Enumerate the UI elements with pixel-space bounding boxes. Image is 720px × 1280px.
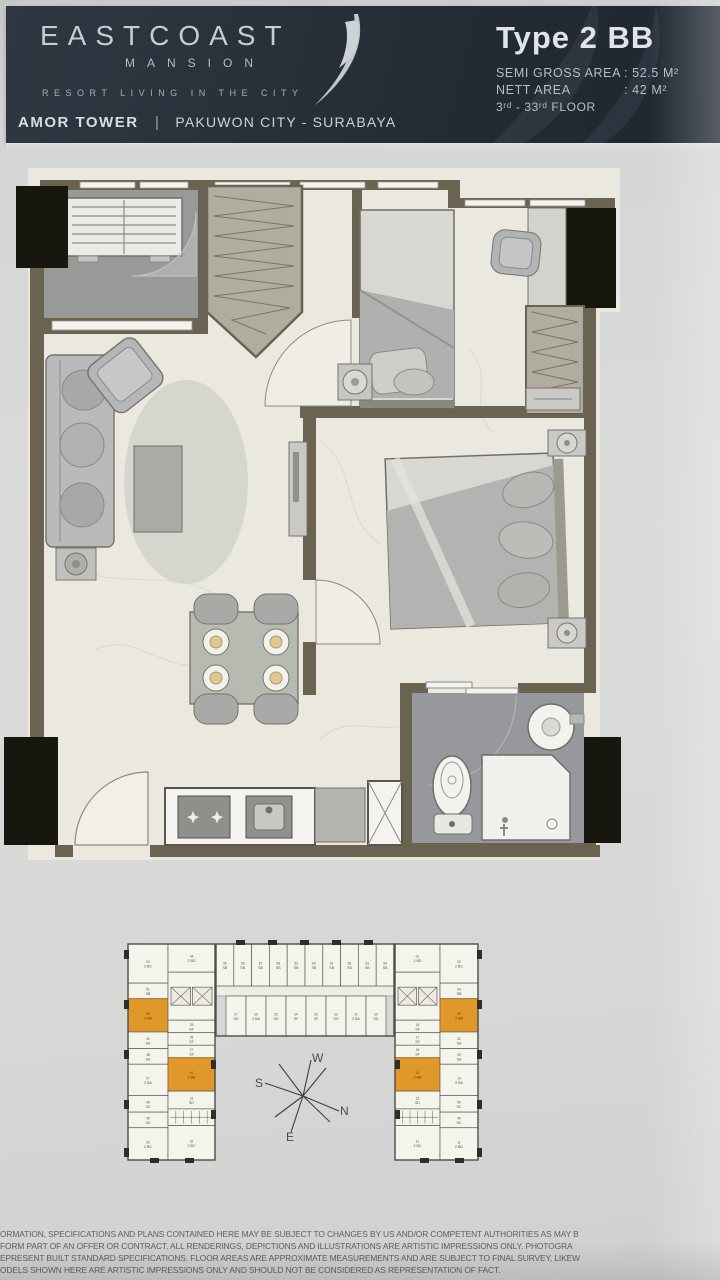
svg-text:16: 16 bbox=[416, 1048, 420, 1052]
svg-text:2 BA: 2 BA bbox=[144, 1081, 152, 1085]
floorplate-unit bbox=[395, 1109, 440, 1126]
floorplate-unit: 102 BB bbox=[395, 1058, 440, 1091]
svg-text:59: 59 bbox=[294, 962, 298, 966]
floorplate-keyplan: 032 BC51SB052 BB49SA48SA072 BA46SC45SC33… bbox=[124, 940, 482, 1163]
disclaimer-line: ORMATION, SPECIFICATIONS AND PLANS CONTA… bbox=[0, 1228, 716, 1240]
svg-text:SB: SB bbox=[312, 966, 317, 970]
svg-text:46: 46 bbox=[146, 1100, 150, 1104]
counter-extension bbox=[315, 788, 365, 842]
floorplate-unit: 102 BB bbox=[168, 1058, 215, 1091]
floorplate-unit: 60SB bbox=[305, 944, 323, 986]
svg-text:52: 52 bbox=[457, 1037, 461, 1041]
svg-text:SC: SC bbox=[457, 1121, 462, 1125]
svg-text:SB: SB bbox=[240, 966, 245, 970]
floorplate-unit: 072 BA bbox=[128, 1064, 168, 1095]
floorplate-unit: 112 BD bbox=[440, 1128, 478, 1160]
svg-text:2 BB: 2 BB bbox=[414, 1075, 422, 1079]
svg-text:SC: SC bbox=[146, 1105, 151, 1109]
floorplate-unit: 58SB bbox=[269, 944, 287, 986]
floorplate-unit: 23SF bbox=[306, 996, 326, 1036]
corridor bbox=[216, 986, 394, 996]
svg-text:2 BB: 2 BB bbox=[455, 1016, 463, 1020]
floorplate-unit: 18SF bbox=[395, 1020, 440, 1033]
svg-text:2 BC: 2 BC bbox=[455, 965, 463, 969]
floorplate-unit: 20SD bbox=[366, 996, 386, 1036]
floorplate-unit: 25SH bbox=[266, 996, 286, 1036]
svg-text:SD: SD bbox=[234, 1017, 239, 1021]
floorplate-unit: 22SH bbox=[326, 996, 346, 1036]
floorplate-unit: 51SB bbox=[128, 983, 168, 999]
svg-text:60: 60 bbox=[312, 962, 316, 966]
svg-text:SB: SB bbox=[457, 992, 462, 996]
svg-text:32: 32 bbox=[190, 1139, 194, 1143]
disclaimer-line: ODELS SHOWN HERE ARE ARTISTIC IMPRESSION… bbox=[0, 1264, 716, 1276]
svg-text:SC: SC bbox=[457, 1105, 462, 1109]
floorplate-unit: 55SB bbox=[216, 944, 234, 986]
floorplate-unit: 48SA bbox=[128, 1049, 168, 1065]
svg-text:SB: SB bbox=[329, 966, 334, 970]
floorplate-unit: 27SD bbox=[226, 996, 246, 1036]
floorplate-unit: 142 BA bbox=[440, 1064, 478, 1095]
floorplate-unit bbox=[168, 1109, 215, 1126]
svg-text:2 BC: 2 BC bbox=[414, 1144, 422, 1148]
service-shaft bbox=[368, 781, 402, 845]
floorplate-unit: 49SC bbox=[440, 1112, 478, 1128]
floorplate-unit: 052 BB bbox=[128, 999, 168, 1032]
svg-text:49: 49 bbox=[146, 1037, 150, 1041]
svg-text:50: 50 bbox=[457, 1100, 461, 1104]
svg-text:53: 53 bbox=[457, 1053, 461, 1057]
floorplate-unit: 322 BC bbox=[168, 1126, 215, 1160]
compass-south: S bbox=[255, 1076, 263, 1090]
floorplate-unit: 012 BD bbox=[395, 944, 440, 972]
svg-text:SB: SB bbox=[223, 966, 228, 970]
floorplate-unit: 46SC bbox=[128, 1095, 168, 1112]
floorplate-unit: 57SB bbox=[252, 944, 270, 986]
floorplate-unit: 52SA bbox=[440, 1032, 478, 1049]
svg-text:51: 51 bbox=[146, 987, 150, 991]
compass-rose: W S N E bbox=[255, 1051, 349, 1144]
svg-text:12: 12 bbox=[416, 1139, 420, 1143]
svg-text:48: 48 bbox=[146, 1053, 150, 1057]
floorplate-unit: 022 BC bbox=[440, 944, 478, 983]
svg-text:2 BA: 2 BA bbox=[352, 1017, 360, 1021]
column-top-left bbox=[16, 186, 68, 268]
floorplate-unit: 53SA bbox=[440, 1049, 478, 1065]
svg-text:25: 25 bbox=[274, 1013, 278, 1017]
floorplate-unit: 042 BD bbox=[168, 944, 215, 972]
floorplate-unit: 17SF bbox=[395, 1033, 440, 1046]
svg-text:SF: SF bbox=[189, 1040, 194, 1044]
svg-text:31: 31 bbox=[190, 1097, 194, 1101]
floorplate-unit: 28SF bbox=[168, 1033, 215, 1046]
svg-text:11: 11 bbox=[457, 1140, 461, 1144]
svg-text:15: 15 bbox=[416, 1097, 420, 1101]
toilet bbox=[433, 756, 472, 834]
floorplate-unit: 24SF bbox=[286, 996, 306, 1036]
floorplate-unit: 27SF bbox=[168, 1045, 215, 1058]
svg-text:SF: SF bbox=[415, 1040, 420, 1044]
svg-text:SB: SB bbox=[347, 966, 352, 970]
dining-set bbox=[190, 594, 298, 724]
svg-text:SF: SF bbox=[314, 1017, 319, 1021]
svg-text:SB: SB bbox=[365, 966, 370, 970]
svg-text:07: 07 bbox=[146, 1076, 150, 1080]
svg-text:SF: SF bbox=[415, 1027, 420, 1031]
floorplate-unit: 45SC bbox=[128, 1112, 168, 1128]
svg-text:SA: SA bbox=[457, 1057, 462, 1061]
svg-text:10: 10 bbox=[190, 1071, 194, 1075]
column-bottom-left bbox=[4, 737, 58, 845]
svg-text:SC: SC bbox=[146, 1121, 151, 1125]
svg-text:57: 57 bbox=[259, 962, 263, 966]
svg-text:45: 45 bbox=[146, 1116, 150, 1120]
svg-text:64: 64 bbox=[383, 962, 387, 966]
svg-text:2 BD: 2 BD bbox=[455, 1145, 463, 1149]
svg-text:49: 49 bbox=[457, 1116, 461, 1120]
floorplate-unit: 15SD bbox=[395, 1091, 440, 1109]
svg-text:23: 23 bbox=[314, 1013, 318, 1017]
svg-text:24: 24 bbox=[294, 1013, 298, 1017]
svg-text:2 BA: 2 BA bbox=[455, 1081, 463, 1085]
bedroom1-chair bbox=[490, 229, 542, 278]
floorplate-unit: 122 BC bbox=[395, 1126, 440, 1160]
svg-text:SH: SH bbox=[334, 1017, 339, 1021]
bathroom bbox=[412, 682, 584, 843]
floorplate-unit: 49SA bbox=[128, 1032, 168, 1049]
svg-text:SB: SB bbox=[294, 966, 299, 970]
floorplate-unit: 61SB bbox=[323, 944, 341, 986]
coffee-table bbox=[134, 446, 182, 532]
svg-text:SB: SB bbox=[258, 966, 263, 970]
svg-text:55: 55 bbox=[223, 962, 227, 966]
floorplate-unit: 29SF bbox=[168, 1020, 215, 1033]
svg-text:27: 27 bbox=[234, 1013, 238, 1017]
svg-text:27: 27 bbox=[190, 1048, 194, 1052]
svg-text:05: 05 bbox=[457, 1012, 461, 1016]
svg-text:56: 56 bbox=[241, 962, 245, 966]
floorplan-svg: 032 BC51SB052 BB49SA48SA072 BA46SC45SC33… bbox=[0, 0, 720, 1280]
svg-text:SF: SF bbox=[189, 1027, 194, 1031]
svg-text:28: 28 bbox=[190, 1035, 194, 1039]
svg-text:2 BB: 2 BB bbox=[144, 1016, 152, 1020]
floorplate-unit: 16SF bbox=[395, 1045, 440, 1058]
svg-text:14: 14 bbox=[457, 1076, 461, 1080]
svg-text:SF: SF bbox=[189, 1052, 194, 1056]
compass-east: E bbox=[286, 1130, 294, 1144]
svg-text:2 BC: 2 BC bbox=[144, 965, 152, 969]
svg-text:62: 62 bbox=[348, 962, 352, 966]
svg-text:29: 29 bbox=[190, 1023, 194, 1027]
svg-text:SA: SA bbox=[146, 1041, 151, 1045]
compass-west: W bbox=[312, 1051, 324, 1065]
column-top-right bbox=[562, 208, 616, 308]
floorplate-unit bbox=[168, 972, 215, 1020]
svg-text:05: 05 bbox=[146, 1012, 150, 1016]
svg-text:02: 02 bbox=[457, 960, 461, 964]
svg-text:22: 22 bbox=[334, 1013, 338, 1017]
svg-text:2 BA: 2 BA bbox=[252, 1017, 260, 1021]
svg-text:01: 01 bbox=[416, 955, 420, 959]
svg-text:SF: SF bbox=[294, 1017, 299, 1021]
svg-text:SF: SF bbox=[415, 1052, 420, 1056]
svg-text:SD: SD bbox=[189, 1101, 194, 1105]
disclaimer-line: EPRESENT BUILT STANDARD SPECIFICATIONS. … bbox=[0, 1252, 716, 1264]
svg-text:SD: SD bbox=[374, 1017, 379, 1021]
floorplate-unit: 31SD bbox=[168, 1091, 215, 1109]
floorplate-unit: 032 BC bbox=[128, 944, 168, 983]
compass-north: N bbox=[340, 1104, 349, 1118]
svg-text:33: 33 bbox=[146, 1140, 150, 1144]
svg-text:SB: SB bbox=[276, 966, 281, 970]
svg-text:17: 17 bbox=[416, 1035, 420, 1039]
svg-text:20: 20 bbox=[374, 1013, 378, 1017]
floorplate-unit: 052 BB bbox=[440, 999, 478, 1032]
floorplate-unit: 63SB bbox=[358, 944, 376, 986]
svg-text:2 BC: 2 BC bbox=[188, 1144, 196, 1148]
floorplate-unit bbox=[395, 972, 440, 1020]
svg-text:2 BC: 2 BC bbox=[144, 1145, 152, 1149]
svg-text:2 BB: 2 BB bbox=[188, 1075, 196, 1079]
bathroom-sliding-door bbox=[426, 682, 472, 688]
svg-text:61: 61 bbox=[330, 962, 334, 966]
svg-text:2 BD: 2 BD bbox=[414, 959, 422, 963]
floorplate-unit: 212 BA bbox=[346, 996, 366, 1036]
svg-text:SA: SA bbox=[146, 1057, 151, 1061]
floorplate-unit: 262 BA bbox=[246, 996, 266, 1036]
floorplate-unit: 59SB bbox=[287, 944, 305, 986]
floorplate-unit: 56SB bbox=[234, 944, 252, 986]
floorplate-unit: 50SC bbox=[440, 1095, 478, 1112]
floorplate-unit: 54SB bbox=[440, 983, 478, 999]
svg-text:21: 21 bbox=[354, 1013, 358, 1017]
floorplate-unit: 64SB bbox=[376, 944, 394, 986]
svg-text:10: 10 bbox=[416, 1071, 420, 1075]
disclaimer-text: ORMATION, SPECIFICATIONS AND PLANS CONTA… bbox=[0, 1228, 716, 1276]
svg-text:03: 03 bbox=[146, 960, 150, 964]
svg-text:63: 63 bbox=[366, 962, 370, 966]
disclaimer-line: FORM PART OF AN OFFER OR CONTRACT. ALL R… bbox=[0, 1240, 716, 1252]
svg-text:SA: SA bbox=[457, 1041, 462, 1045]
svg-text:26: 26 bbox=[254, 1013, 258, 1017]
svg-text:54: 54 bbox=[457, 987, 461, 991]
svg-text:SB: SB bbox=[383, 966, 388, 970]
floorplate-unit: 332 BC bbox=[128, 1128, 168, 1160]
svg-text:SD: SD bbox=[415, 1101, 420, 1105]
svg-text:SH: SH bbox=[274, 1017, 279, 1021]
svg-text:04: 04 bbox=[190, 955, 194, 959]
svg-text:58: 58 bbox=[277, 962, 281, 966]
bedroom2-bed bbox=[385, 453, 569, 629]
svg-text:18: 18 bbox=[416, 1023, 420, 1027]
shower bbox=[482, 755, 570, 840]
floorplate-unit: 62SB bbox=[341, 944, 359, 986]
svg-text:2 BD: 2 BD bbox=[188, 959, 196, 963]
floorplate-units: 032 BC51SB052 BB49SA48SA072 BA46SC45SC33… bbox=[128, 944, 478, 1160]
svg-text:SB: SB bbox=[146, 992, 151, 996]
